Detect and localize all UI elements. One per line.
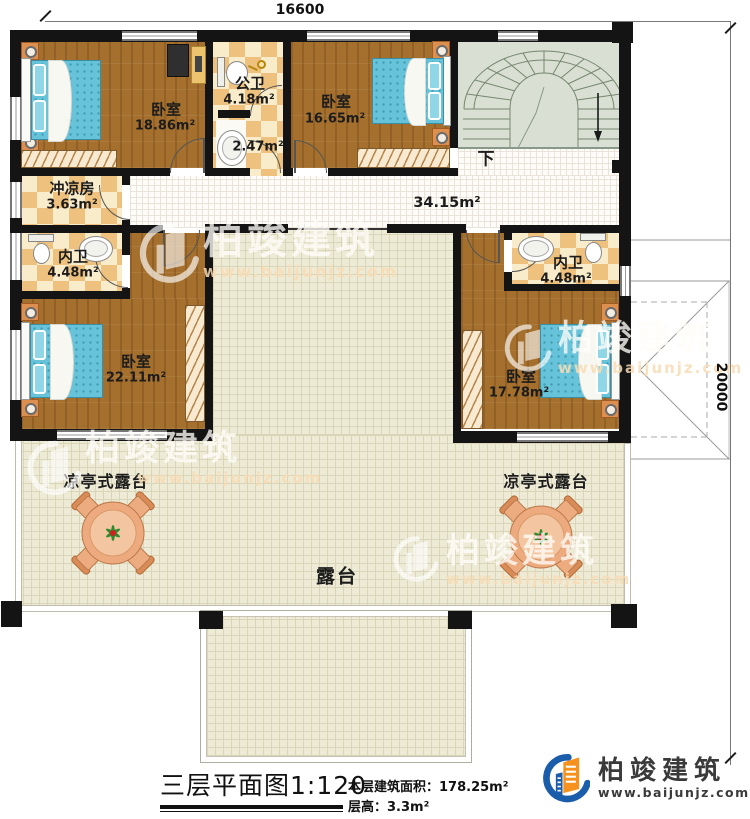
terrace-pillar [611, 604, 637, 628]
bed-sheet [50, 324, 74, 400]
window [122, 31, 197, 41]
floor-height-value: 3.3m² [387, 800, 429, 815]
dimension-right-value: 20000 [713, 358, 729, 416]
room-label-public-bath: 公卫 [235, 73, 265, 94]
window [498, 31, 538, 41]
window [517, 432, 608, 442]
floor-height-note: 层高：3.3m² [348, 796, 429, 815]
wall-segment [453, 228, 461, 441]
room-label-bedroom-br: 卧室 [506, 366, 536, 387]
title-block: 三层平面图1:120 [160, 766, 367, 812]
nightstand [432, 128, 450, 146]
nightstand [601, 303, 619, 321]
wall-segment [450, 41, 458, 148]
label-terrace: 露台 [316, 562, 358, 589]
dimension-line-top [45, 21, 731, 22]
nightstand [21, 303, 39, 321]
toilet-icon [33, 243, 50, 264]
dimension-top-value: 16600 [276, 2, 325, 18]
patio-table-set [489, 485, 593, 589]
bed-headboard [21, 322, 30, 400]
pillow [596, 364, 609, 394]
wall-segment [21, 225, 130, 233]
wall-segment [21, 168, 170, 176]
room-label-bedroom-tr: 卧室 [321, 91, 351, 112]
shower-head-icon [257, 60, 266, 69]
label-pavilion-terrace-left: 凉亭式露台 [63, 468, 148, 492]
room-area-bedroom-tr: 16.65m² [305, 112, 365, 127]
room-hallway-band [130, 176, 620, 228]
pillow [33, 364, 46, 394]
wardrobe [185, 305, 205, 422]
room-area-hallway: 34.15m² [413, 195, 480, 211]
terrace-edge-right [624, 443, 631, 612]
balcony-floor [206, 616, 466, 757]
wall-segment [283, 168, 293, 176]
terrace-pillar [199, 611, 223, 629]
wall-segment [504, 272, 512, 291]
room-area-bedroom-tl: 18.86m² [135, 119, 195, 134]
desk-lamp [195, 56, 202, 72]
wardrobe [357, 148, 450, 168]
bed-headboard [611, 322, 620, 400]
wall-right [619, 30, 631, 443]
room-label-bedroom-tl: 卧室 [151, 99, 181, 120]
pillow [33, 100, 46, 132]
stair-direction-label: 下 [478, 145, 495, 170]
window [57, 430, 167, 440]
patio-table-set [61, 481, 165, 585]
bed-headboard [443, 56, 451, 126]
nightstand [601, 400, 619, 418]
threshold-line [288, 228, 387, 230]
label-pavilion-terrace-right: 凉亭式露台 [503, 468, 588, 492]
room-area-bedroom-br: 17.78m² [489, 386, 549, 401]
company-logo-url: www.baijunjz.com [598, 785, 750, 800]
pillow [428, 62, 441, 90]
wall-segment [500, 225, 631, 233]
roof-overhang [631, 230, 750, 470]
wardrobe [462, 330, 483, 429]
wall-segment [205, 42, 213, 176]
wall-corner-pillar [612, 21, 633, 43]
window [10, 182, 22, 218]
toilet-icon [585, 242, 602, 263]
wall-segment [218, 110, 250, 118]
company-logo-icon [540, 748, 590, 810]
wall-segment [213, 168, 250, 176]
wall-segment [205, 224, 288, 233]
wall-stub [612, 160, 631, 173]
company-logo-brand: 柏竣建筑 [598, 758, 750, 785]
terrace-pillar [1, 601, 22, 627]
wall-segment [283, 42, 291, 176]
wall-segment [328, 168, 458, 176]
staircase [458, 41, 620, 148]
room-area-bedroom-bl: 22.11m² [106, 371, 166, 386]
room-area-shower: 3.63m² [46, 198, 97, 213]
floor-area-value: 178.25m² [439, 780, 508, 795]
wall-segment [122, 225, 163, 233]
window [620, 266, 631, 296]
toilet-icon [580, 233, 606, 241]
toilet-icon [217, 57, 225, 87]
door-leaf [163, 230, 165, 266]
room-label-bedroom-bl: 卧室 [121, 351, 151, 372]
floor-height-label: 层高： [348, 800, 387, 815]
dimension-line-right [730, 21, 731, 765]
company-logo: 柏竣建筑 www.baijunjz.com [540, 748, 750, 810]
terrace-edge-left [15, 433, 22, 612]
room-area-bath-left: 4.48m² [47, 266, 98, 281]
floor-area-label: 本层建筑面积： [348, 780, 439, 795]
nightstand [21, 399, 39, 417]
door-leaf [294, 140, 296, 173]
title-underline-thin [160, 811, 343, 812]
stair-down-arrow-icon [594, 93, 602, 142]
pillow [33, 64, 46, 96]
wall-segment [21, 291, 130, 299]
bed-sheet [404, 58, 426, 126]
bed-sheet [48, 60, 72, 142]
plan-title: 三层平面图1:120 [160, 766, 367, 802]
room-area-public-bath: 4.18m² [223, 93, 274, 108]
window [307, 31, 410, 41]
room-area-small-bath: 2.47m² [232, 140, 283, 155]
pillow [428, 92, 441, 120]
wall-segment [205, 233, 213, 441]
wall-segment [504, 232, 512, 240]
window [10, 233, 22, 280]
room-area-bath-right: 4.48m² [540, 272, 591, 287]
wardrobe [21, 150, 117, 168]
floor-area-note: 本层建筑面积：178.25m² [348, 776, 508, 795]
desk [167, 44, 189, 77]
courtyard-floor [213, 230, 461, 435]
door-leaf [203, 138, 205, 173]
room-label-shower: 冲凉房 [49, 178, 94, 199]
pillow [596, 330, 609, 360]
pillow [33, 330, 46, 360]
room-label-bath-left: 内卫 [58, 246, 88, 267]
room-label-bath-right: 内卫 [553, 252, 583, 273]
floor-plan: 卧室 18.86m² 公卫 4.18m² 2.47m² 卧室 16.65m² 冲… [0, 0, 750, 819]
wall-segment [122, 176, 130, 185]
title-underline [160, 805, 343, 809]
door-leaf [498, 230, 500, 263]
toilet-icon [28, 234, 54, 242]
terrace-pillar [448, 611, 472, 629]
sink-basin [523, 240, 549, 257]
bed-headboard [21, 58, 31, 142]
